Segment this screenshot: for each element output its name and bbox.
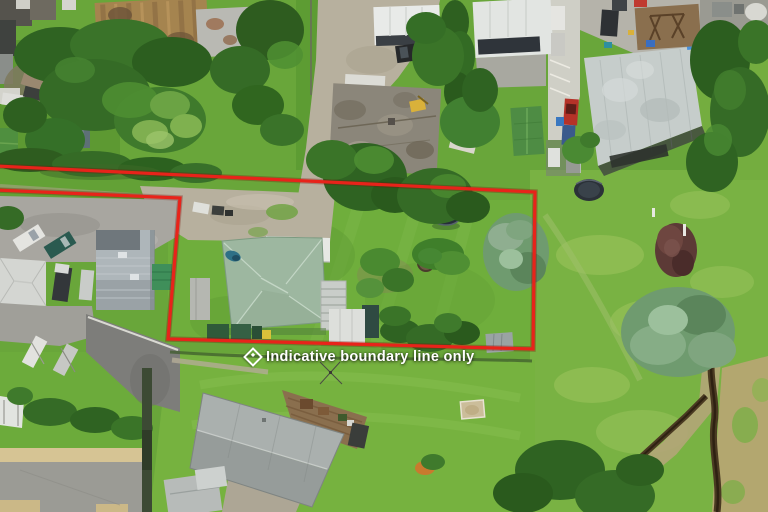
diamond-icon (243, 347, 263, 367)
boundary-disclaimer-text: Indicative boundary line only (266, 349, 475, 365)
aerial-photo (0, 0, 768, 512)
aerial-photo-stage: Indicative boundary line only (0, 0, 768, 512)
boundary-disclaimer: Indicative boundary line only (246, 349, 475, 365)
